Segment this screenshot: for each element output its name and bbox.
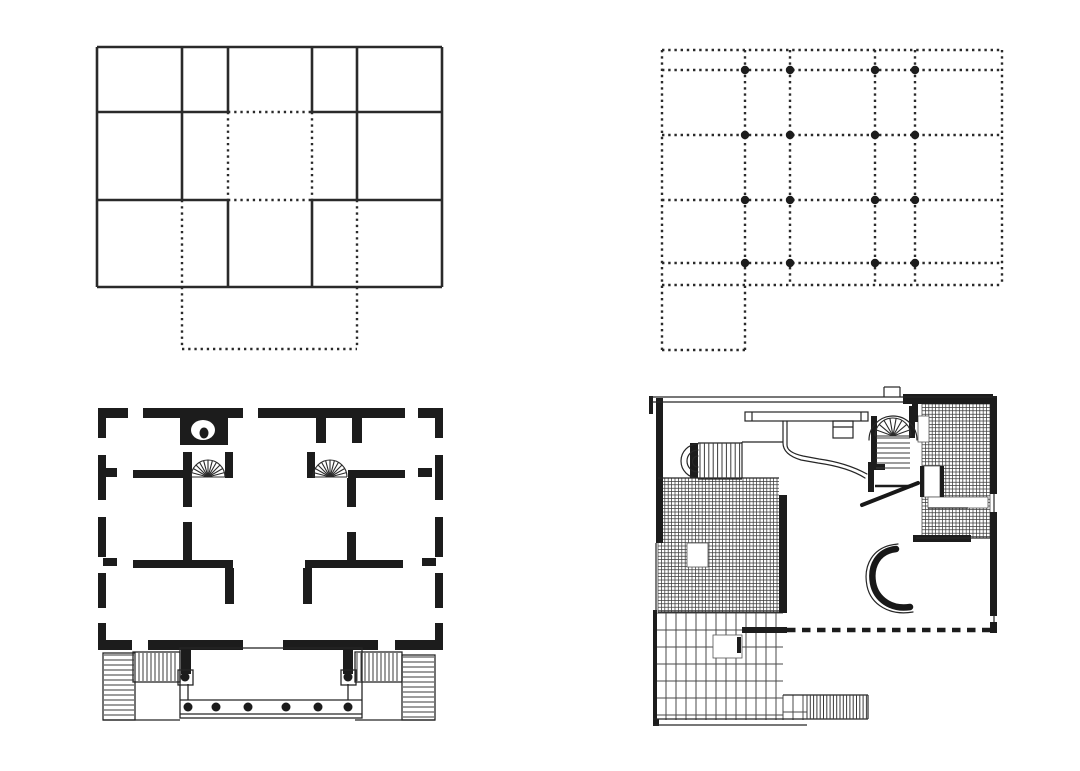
load-bearing-plan-circles-8 [181, 673, 353, 712]
free-plan-hatch-12 [807, 695, 866, 719]
free-plan-hatch-11 [876, 438, 910, 468]
figure [0, 0, 1080, 771]
panel-free-plan [649, 387, 997, 726]
panel-bay-structure-diagram [97, 47, 442, 349]
panel-load-bearing-plan [98, 408, 443, 720]
load-bearing-plan-ellipses-2 [200, 428, 209, 439]
free-plan-fan-13 [875, 418, 911, 436]
column-grid-diagram-lines-0 [662, 50, 1002, 350]
load-bearing-plan-hatch-6 [135, 653, 397, 681]
load-bearing-plan-fan-3 [191, 460, 347, 477]
column-grid-diagram-circles-1 [741, 66, 919, 267]
free-plan-hatch-10 [700, 443, 740, 479]
figure-canvas [0, 0, 1080, 771]
free-plan-outline_rects-6 [745, 412, 868, 438]
load-bearing-plan-lines-5 [103, 684, 435, 720]
bay-structure-diagram-lines-0 [97, 47, 442, 287]
free-plan-paths-8 [872, 549, 910, 607]
load-bearing-plan-rects-0 [98, 408, 443, 674]
bay-structure-diagram-lines-1 [182, 112, 357, 349]
panel-column-grid-diagram [662, 50, 1002, 350]
